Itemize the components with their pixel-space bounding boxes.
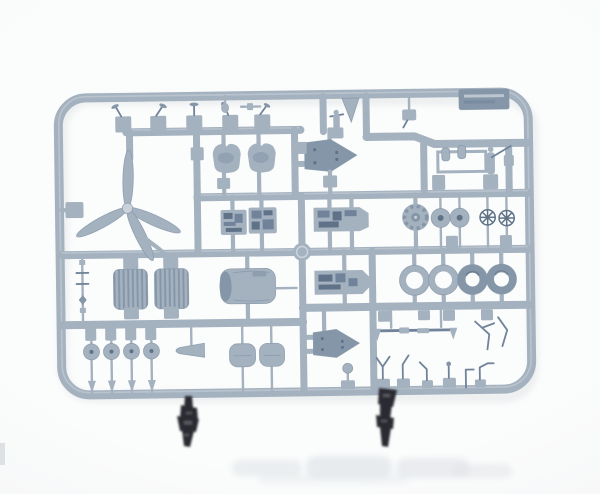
engine-bearer-part-upper	[294, 129, 357, 196]
cooling-fan-part	[402, 194, 430, 250]
wire-antenna-parts	[475, 317, 507, 349]
sprue-photo	[0, 0, 600, 494]
dark-plastic-part-left	[177, 396, 199, 447]
dark-plastic-part-right	[376, 388, 397, 447]
tail-wheel-parts	[83, 324, 160, 393]
engine-cowling-part	[219, 252, 297, 323]
arrowhead-part	[342, 98, 359, 122]
runner-blocks-h5	[378, 309, 493, 322]
surface-reflection	[232, 456, 512, 484]
cockpit-sidewall-panels	[220, 196, 277, 253]
nose-cone-part	[176, 323, 205, 357]
sprue	[58, 89, 532, 396]
propeller-part	[73, 149, 183, 263]
centre-disc-part	[293, 243, 311, 261]
radiator-parts	[113, 256, 189, 319]
sprue-label-plate	[459, 89, 509, 110]
seat-parts	[212, 130, 276, 197]
pitot-mast-part	[65, 202, 89, 325]
photo-edge-artifact	[0, 443, 5, 465]
main-tire-parts	[399, 249, 517, 307]
sprue-photo-canvas	[0, 0, 600, 494]
engine-bearer-part-lower	[305, 307, 360, 358]
gear-door-parts	[229, 322, 285, 391]
antenna-mast-parts	[341, 354, 494, 389]
runner-block	[504, 155, 514, 166]
